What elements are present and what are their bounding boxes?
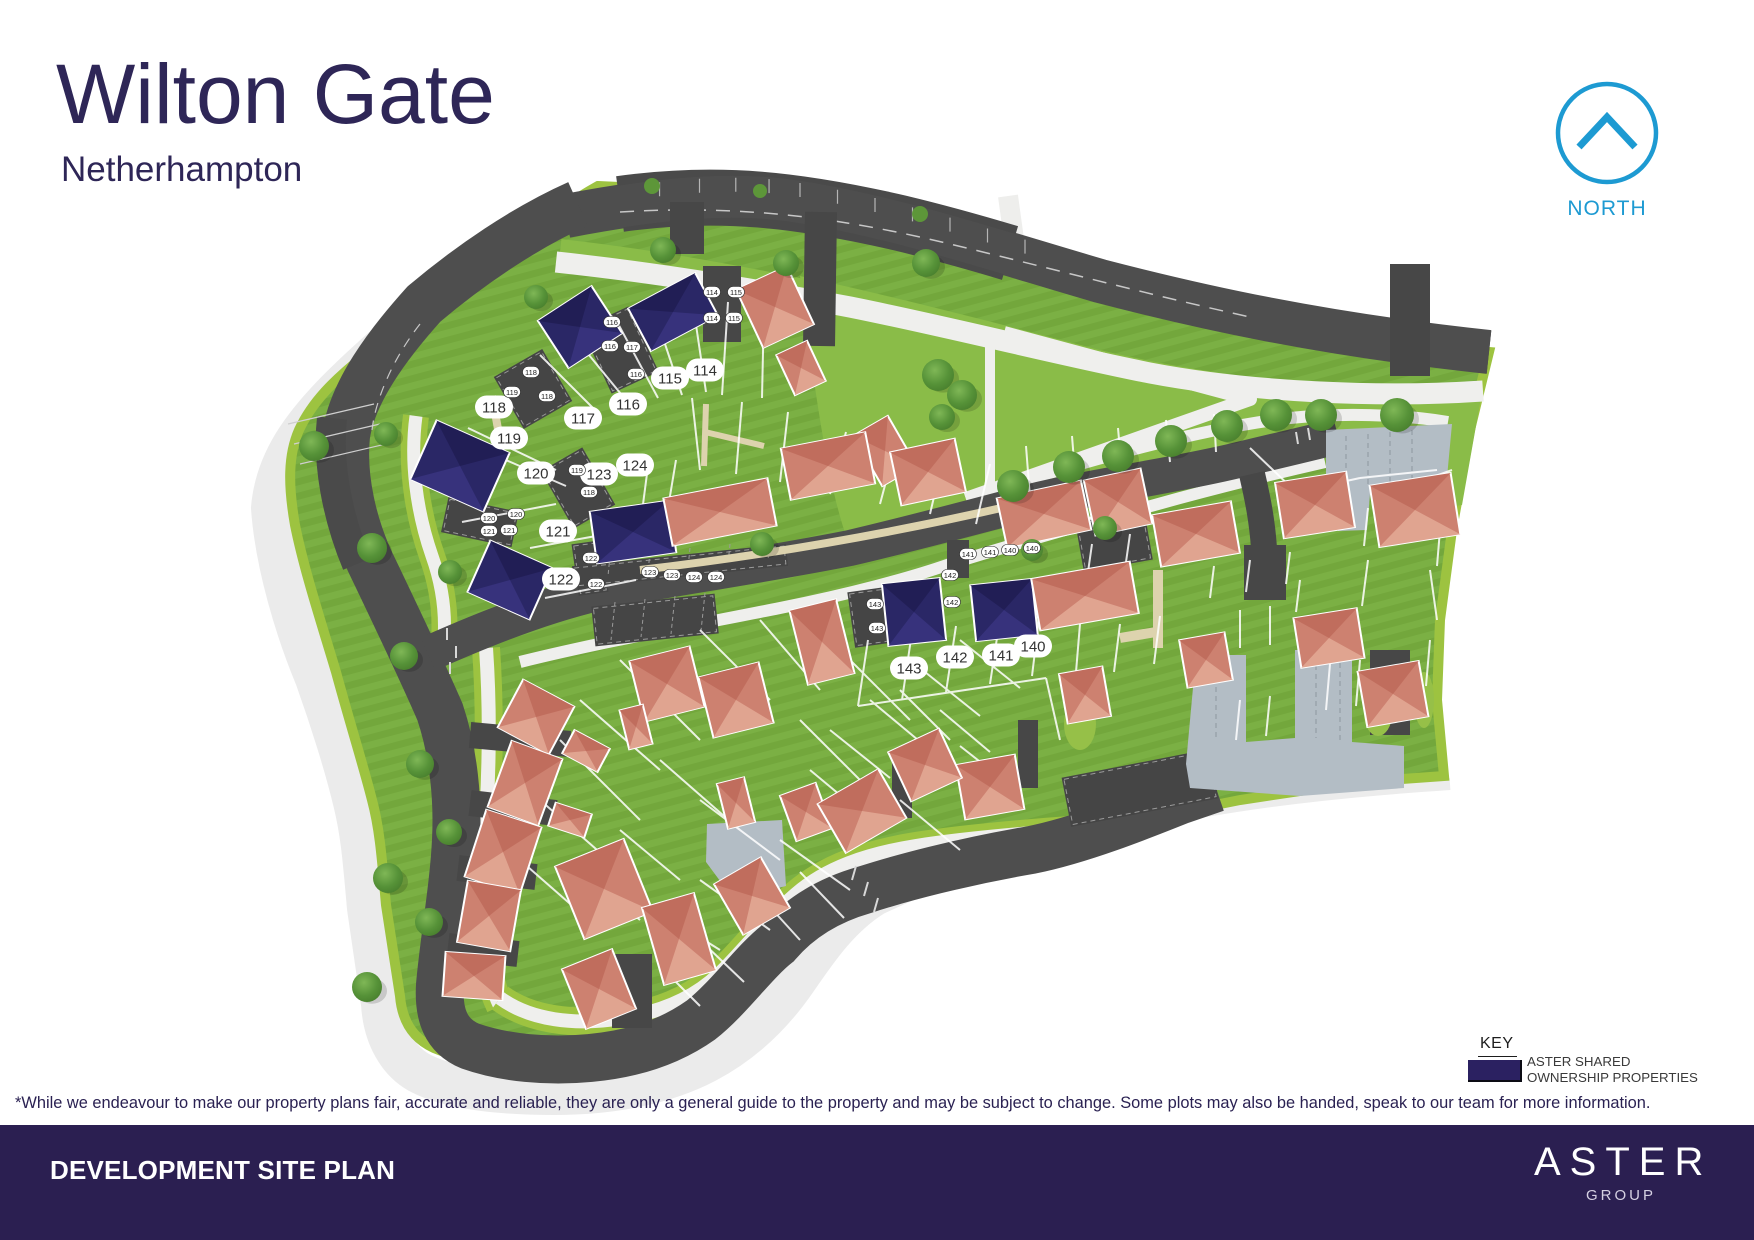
- svg-text:116: 116: [606, 318, 618, 327]
- svg-text:116: 116: [616, 397, 640, 414]
- svg-text:114: 114: [693, 363, 717, 380]
- svg-text:121: 121: [483, 527, 496, 536]
- svg-text:123: 123: [666, 571, 679, 580]
- svg-text:120: 120: [483, 514, 496, 523]
- svg-text:114: 114: [706, 314, 718, 323]
- svg-text:119: 119: [497, 431, 521, 448]
- svg-text:118: 118: [482, 400, 506, 417]
- svg-text:124: 124: [622, 458, 647, 475]
- svg-text:141: 141: [988, 648, 1013, 665]
- svg-text:115: 115: [730, 288, 742, 297]
- svg-text:119: 119: [571, 466, 583, 475]
- svg-text:140: 140: [1004, 546, 1017, 555]
- svg-text:116: 116: [630, 370, 642, 379]
- svg-text:142: 142: [944, 571, 957, 580]
- svg-text:124: 124: [710, 573, 723, 582]
- svg-text:122: 122: [590, 580, 603, 589]
- svg-text:123: 123: [586, 467, 611, 484]
- svg-text:143: 143: [869, 600, 882, 609]
- svg-text:120: 120: [510, 510, 523, 519]
- svg-text:143: 143: [871, 624, 884, 633]
- svg-text:118: 118: [525, 368, 537, 377]
- svg-text:142: 142: [942, 650, 967, 667]
- svg-text:140: 140: [1026, 544, 1039, 553]
- svg-text:117: 117: [571, 411, 595, 428]
- svg-text:141: 141: [962, 550, 975, 559]
- svg-text:115: 115: [728, 314, 740, 323]
- svg-text:120: 120: [523, 466, 548, 483]
- svg-text:118: 118: [583, 488, 595, 497]
- svg-text:121: 121: [545, 524, 570, 541]
- svg-text:116: 116: [604, 342, 616, 351]
- svg-text:123: 123: [644, 568, 657, 577]
- svg-text:121: 121: [503, 526, 516, 535]
- svg-text:122: 122: [548, 572, 573, 589]
- svg-text:122: 122: [585, 554, 598, 563]
- svg-text:140: 140: [1020, 639, 1045, 656]
- svg-text:118: 118: [541, 392, 553, 401]
- svg-text:143: 143: [896, 661, 921, 678]
- svg-text:124: 124: [688, 573, 701, 582]
- svg-text:117: 117: [626, 343, 638, 352]
- svg-text:115: 115: [658, 371, 682, 388]
- svg-text:119: 119: [506, 388, 518, 397]
- svg-text:142: 142: [946, 598, 959, 607]
- svg-text:141: 141: [984, 548, 997, 557]
- svg-text:114: 114: [706, 288, 718, 297]
